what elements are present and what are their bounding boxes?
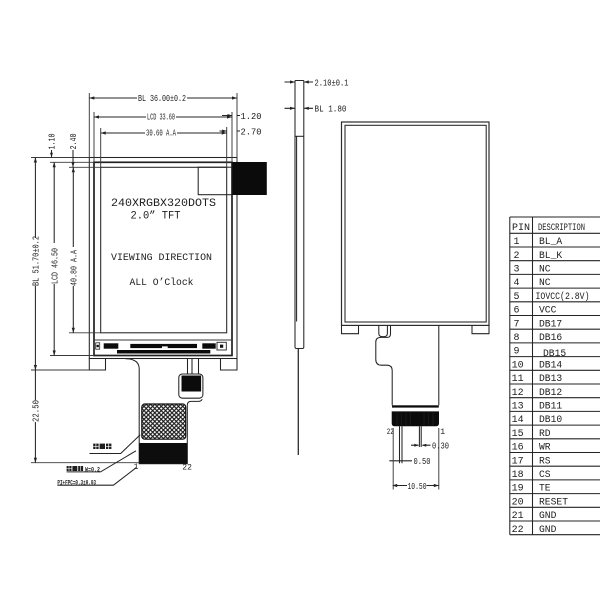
svg-text:PI+FPC=0.3±0.03: PI+FPC=0.3±0.03 — [57, 479, 96, 487]
svg-text:RESET: RESET — [539, 497, 568, 508]
svg-text:BL 1.80: BL 1.80 — [315, 105, 347, 115]
svg-text:DB10: DB10 — [539, 415, 562, 426]
svg-text:20: 20 — [512, 497, 524, 508]
svg-text:2.70: 2.70 — [241, 126, 262, 137]
svg-text:1: 1 — [440, 428, 445, 437]
svg-text:LCD 33.60: LCD 33.60 — [147, 113, 175, 123]
svg-text:0.30: 0.30 — [432, 442, 449, 452]
svg-text:22: 22 — [512, 525, 524, 536]
svg-text:NC: NC — [539, 278, 551, 289]
svg-text:PIN: PIN — [512, 223, 530, 234]
svg-text:10: 10 — [512, 360, 524, 371]
svg-text:DB17: DB17 — [539, 319, 562, 330]
svg-text:BL 51.70±0.2: BL 51.70±0.2 — [32, 236, 42, 286]
svg-text:240XRGBX320DOTS: 240XRGBX320DOTS — [111, 198, 216, 210]
svg-text:BL 36.00±0.2: BL 36.00±0.2 — [138, 94, 186, 104]
svg-text:30.60 A.A: 30.60 A.A — [146, 129, 176, 139]
svg-text:1.10: 1.10 — [48, 134, 58, 150]
svg-text:8: 8 — [514, 333, 520, 344]
svg-text:16: 16 — [512, 443, 524, 454]
svg-text:DB13: DB13 — [539, 374, 562, 385]
svg-text:DB14: DB14 — [539, 360, 562, 371]
svg-text:GND: GND — [539, 511, 556, 522]
svg-text:12: 12 — [512, 388, 524, 399]
svg-text:13: 13 — [512, 402, 524, 413]
svg-text:NC: NC — [539, 265, 551, 276]
svg-text:2.10±0.1: 2.10±0.1 — [315, 78, 349, 88]
svg-text:1.20: 1.20 — [241, 111, 262, 122]
svg-text:4: 4 — [514, 278, 520, 289]
svg-text:DESCRIPTION: DESCRIPTION — [538, 223, 585, 234]
svg-text:BL_A: BL_A — [539, 237, 562, 248]
svg-text:IOVCC(2.8V): IOVCC(2.8V) — [536, 291, 590, 303]
svg-text:15: 15 — [512, 429, 524, 440]
svg-text:22.50: 22.50 — [32, 400, 42, 422]
svg-text:40.80 A.A: 40.80 A.A — [70, 250, 80, 286]
svg-text:GND: GND — [539, 525, 556, 536]
svg-text:DB15: DB15 — [543, 349, 566, 360]
svg-text:14: 14 — [512, 415, 524, 426]
svg-text:ALL O’Clock: ALL O’Clock — [130, 277, 194, 289]
svg-text:11: 11 — [512, 374, 524, 385]
svg-text:TE: TE — [539, 484, 551, 495]
svg-text:17: 17 — [512, 456, 524, 467]
svg-text:WR: WR — [539, 443, 551, 454]
svg-text:18: 18 — [512, 470, 524, 481]
svg-text:VCC: VCC — [539, 306, 556, 317]
svg-text:BL_K: BL_K — [539, 251, 562, 262]
svg-text:1: 1 — [134, 463, 139, 472]
svg-text:DB16: DB16 — [539, 333, 562, 344]
svg-text:0.50: 0.50 — [414, 457, 431, 467]
svg-text:9: 9 — [514, 347, 520, 358]
svg-text:LCD 46.50: LCD 46.50 — [50, 248, 60, 284]
svg-text:2.0” TFT: 2.0” TFT — [131, 210, 181, 222]
svg-text:1: 1 — [514, 237, 520, 248]
svg-text:7: 7 — [514, 319, 520, 330]
svg-text:10.50: 10.50 — [408, 482, 427, 492]
svg-text:2.40: 2.40 — [69, 134, 79, 150]
svg-text:3: 3 — [514, 265, 520, 276]
svg-text:DB11: DB11 — [539, 402, 562, 413]
svg-text:CS: CS — [539, 470, 551, 481]
svg-text:21: 21 — [512, 511, 524, 522]
svg-text:5: 5 — [514, 292, 520, 303]
svg-text:19: 19 — [512, 484, 524, 495]
svg-text:2: 2 — [514, 251, 520, 262]
svg-text:RD: RD — [539, 429, 551, 440]
svg-text:RS: RS — [539, 456, 551, 467]
svg-text:22: 22 — [182, 464, 192, 473]
svg-text:VIEWING DIRECTION: VIEWING DIRECTION — [111, 252, 212, 264]
svg-text:DB12: DB12 — [539, 388, 562, 399]
svg-text:6: 6 — [514, 306, 520, 317]
